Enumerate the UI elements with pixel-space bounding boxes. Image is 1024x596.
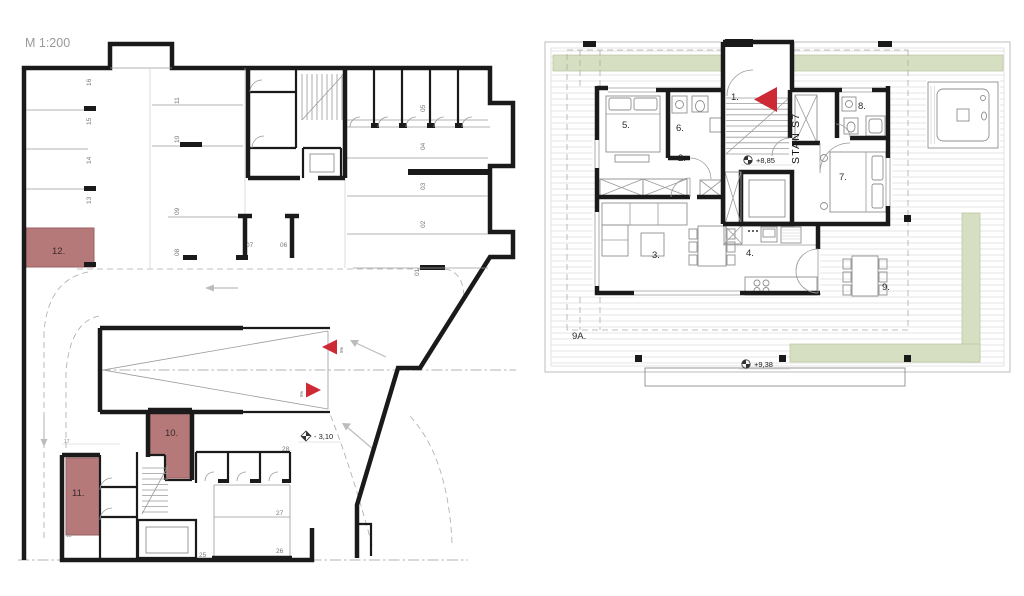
elevation-terrace-text: +9,38: [754, 360, 773, 369]
ramp-slope-arrow-b: [306, 383, 321, 398]
parking-label-02: 02: [420, 220, 427, 228]
unit-name-label: STAN S7: [790, 113, 802, 164]
room-label-9: 9.: [882, 282, 890, 293]
parking-label-14: 14: [86, 156, 93, 164]
parking-label-03: 03: [420, 182, 427, 190]
parking-label-04: 04: [420, 142, 427, 150]
bed-room7: [821, 152, 887, 212]
unit-10-label: 10.: [165, 428, 178, 439]
parking-label-16: 16: [86, 78, 93, 86]
parking-label-26: 26: [276, 548, 284, 555]
room-label-9a: 9A.: [572, 331, 586, 342]
planter-right: [962, 213, 980, 362]
room-label-3: 3.: [652, 250, 660, 261]
storage-label-18: 18: [66, 533, 72, 539]
parking-label-01: 01: [414, 268, 421, 276]
bed-room5: [606, 96, 660, 162]
hot-tub: [926, 80, 1000, 150]
parking-label-15: 15: [86, 117, 93, 125]
apartment-floor-plan: STAN S7 1. 2. 3. 4. 5. 6. 7. 8. 9. 9A. +…: [545, 39, 1010, 386]
room-label-2: 2.: [678, 153, 686, 164]
upper-stair-block: [248, 68, 345, 178]
garage-elevation-marker: - 3,10: [298, 431, 341, 442]
parking-label-05: 05: [420, 104, 427, 112]
garage-floor-plan: M 1:200 16 15 14 13 12.: [18, 36, 516, 560]
scale-label: M 1:200: [25, 36, 70, 50]
ramp-slope-arrow-a: [322, 340, 337, 355]
parking-label-11: 11: [174, 97, 181, 104]
parking-label-10: 10: [174, 135, 181, 143]
parking-label-06: 06: [280, 242, 288, 249]
room-label-1: 1.: [731, 92, 739, 103]
planter-bottom: [790, 344, 980, 362]
elevation-inner-text: +8,85: [756, 156, 775, 165]
room-label-6: 6.: [676, 123, 684, 134]
floor-plan-sheet: M 1:200 16 15 14 13 12.: [0, 0, 1024, 596]
plans-canvas: M 1:200 16 15 14 13 12.: [0, 0, 1024, 596]
slope-label-a: 5%: [339, 347, 344, 353]
room-label-5: 5.: [622, 120, 630, 131]
room-label-4: 4.: [746, 248, 754, 259]
storage-label-17: 17: [64, 439, 70, 445]
cell-label-25: 25: [199, 552, 207, 559]
parking-label-27: 27: [276, 510, 284, 517]
storage-cells-top: [345, 68, 490, 128]
unit-11-label: 11.: [72, 488, 85, 499]
room-label-8: 8.: [858, 101, 866, 112]
parking-label-08: 08: [174, 248, 181, 256]
parking-label-09: 09: [174, 207, 181, 215]
parking-right-column: 05 04 03 02 01: [347, 104, 490, 276]
parking-label-13: 13: [86, 196, 93, 204]
slope-label-b: 5%: [299, 391, 304, 397]
garage-elevation-text: - 3,10: [314, 432, 333, 441]
unit-12-label: 12.: [52, 246, 65, 257]
room-label-7: 7.: [839, 172, 847, 183]
parking-label-28: 28.: [282, 446, 291, 453]
